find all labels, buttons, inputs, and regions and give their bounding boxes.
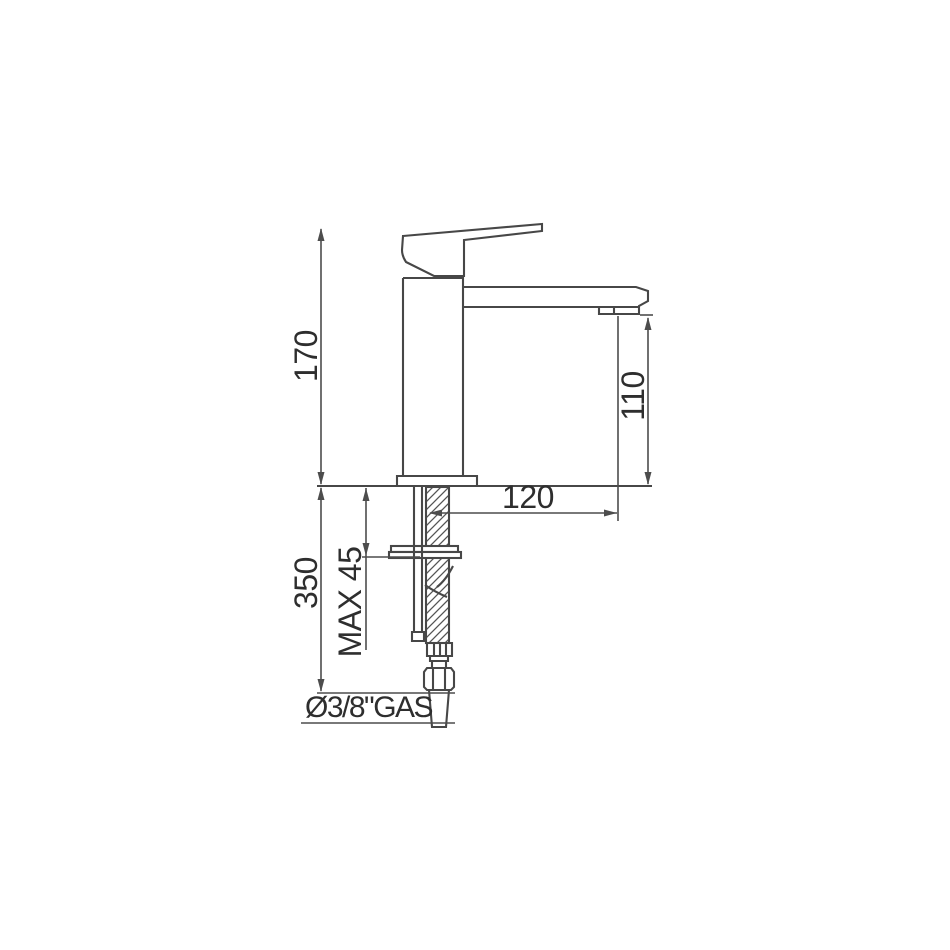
dimension-total-height: 170 — [288, 228, 325, 485]
dimension-spout-outlet-height: 110 — [615, 315, 653, 485]
faucet-handle — [402, 224, 542, 276]
hex-nut — [424, 668, 454, 690]
dim-connection-size-label: Ø3/8"GAS — [305, 691, 433, 724]
dim-max-thickness-label: MAX 45 — [332, 547, 368, 658]
dim-under-counter-length-label: 350 — [288, 557, 324, 609]
dimension-max-counter-thickness: MAX 45 — [332, 488, 420, 657]
dim-spout-reach-label: 120 — [502, 479, 554, 515]
faucet-body — [403, 276, 463, 476]
faucet-dimension-drawing: 170 350 MAX 45 110 120 Ø3/8"GAS — [0, 0, 950, 950]
base-flange — [397, 476, 477, 486]
pop-up-rod — [412, 487, 424, 641]
dimension-supply-connection: Ø3/8"GAS — [301, 691, 455, 724]
dim-total-height-label: 170 — [288, 330, 324, 382]
threaded-shank — [426, 487, 449, 643]
hose-crimp-sleeve — [427, 643, 452, 656]
dim-spout-height-label: 110 — [615, 371, 651, 421]
hose-collar — [430, 656, 448, 668]
faucet-spout — [463, 287, 648, 314]
faucet-outline — [397, 224, 648, 486]
dimension-spout-reach: 120 — [429, 316, 618, 521]
dimension-under-counter-length: 350 — [288, 487, 325, 692]
technical-drawing-page: 170 350 MAX 45 110 120 Ø3/8"GAS — [0, 0, 950, 950]
